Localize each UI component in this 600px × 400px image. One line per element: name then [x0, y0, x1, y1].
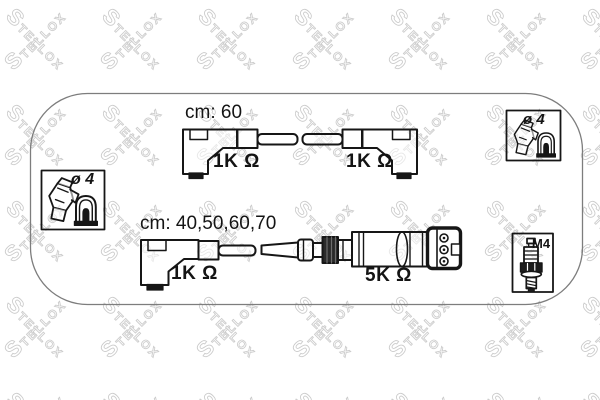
right-terminal-diameter-label: ø 4: [523, 111, 545, 128]
bottom-cable-length-label: cm: 40,50,60,70: [140, 213, 276, 235]
top-cable-right-wire: [303, 134, 343, 145]
left-terminal-contact-icon: [74, 196, 97, 225]
spark-plug-thread-label: M4: [532, 236, 550, 251]
bottom-cable-left-resistance-label: 1K Ω: [171, 263, 218, 285]
right-terminal-contact-icon: [537, 133, 556, 157]
top-cable-left-resistance-label: 1K Ω: [213, 151, 260, 173]
diagram-frame: [31, 94, 583, 305]
bottom-cable-coil-connector: [262, 228, 461, 269]
top-cable-right-resistance-label: 1K Ω: [346, 151, 393, 173]
top-cable-left-wire: [258, 134, 298, 145]
top-cable-length-label: cm: 60: [185, 102, 242, 124]
bottom-cable-left-wire: [219, 246, 256, 256]
bottom-cable-right-resistance-label: 5K Ω: [365, 265, 412, 287]
diagram-linework: [0, 0, 600, 400]
ignition-cable-kit-diagram: STELLOX STELLOX: [0, 0, 600, 400]
left-terminal-diameter-label: ø 4: [71, 171, 94, 189]
